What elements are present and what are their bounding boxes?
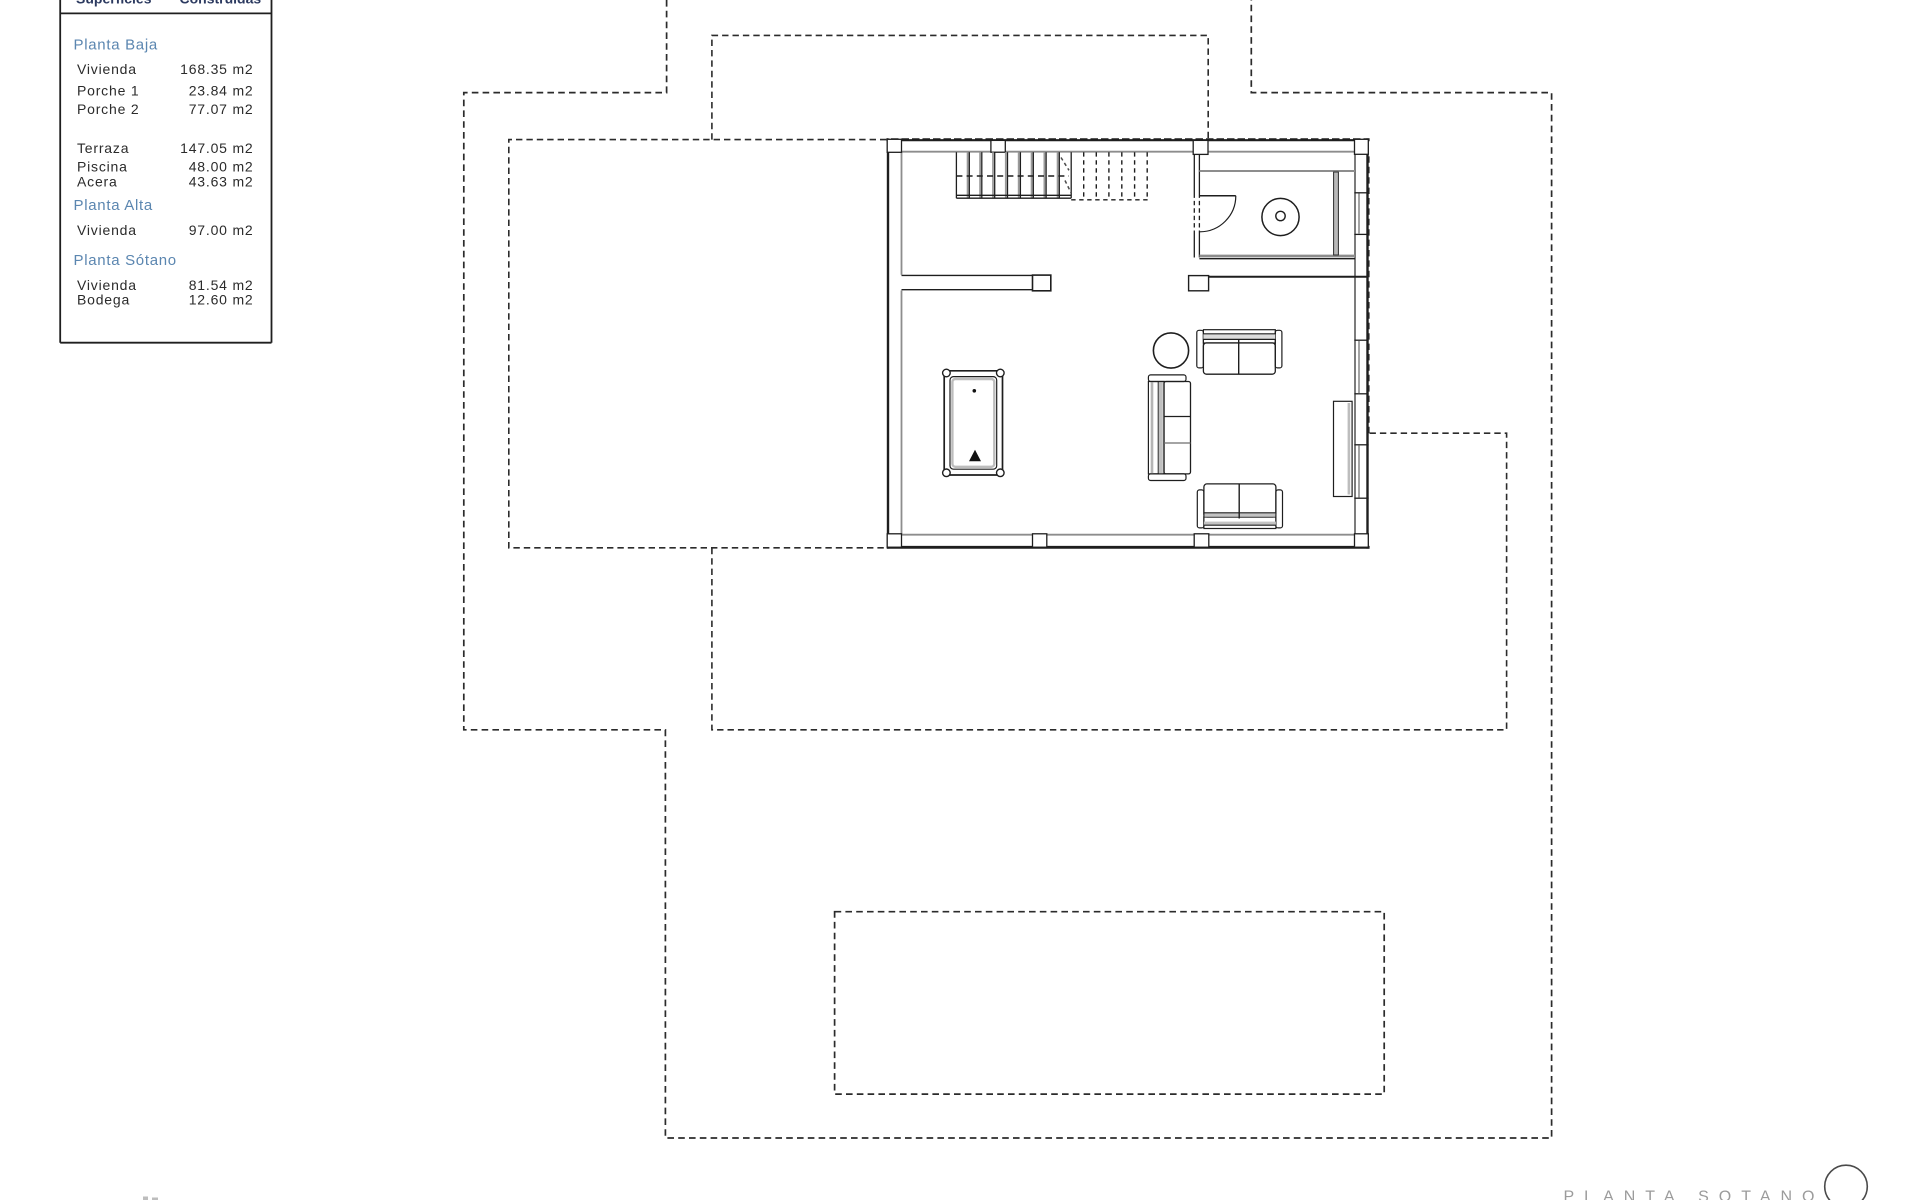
svg-text:147.05 m2: 147.05 m2: [180, 140, 253, 156]
svg-text:Porche 1: Porche 1: [77, 83, 139, 99]
svg-text:Acera: Acera: [77, 174, 118, 190]
svg-text:Porche 2: Porche 2: [77, 101, 139, 117]
svg-text:Superficies: Superficies: [76, 0, 152, 7]
svg-text:Vivienda: Vivienda: [77, 222, 137, 238]
svg-text:PLANTA SOTANO: PLANTA SOTANO: [1564, 1188, 1825, 1200]
svg-text:12.60 m2: 12.60 m2: [189, 292, 254, 308]
svg-text:97.00 m2: 97.00 m2: [189, 222, 254, 238]
svg-text:Vivienda: Vivienda: [77, 61, 137, 77]
svg-text:23.84 m2: 23.84 m2: [189, 83, 254, 99]
svg-text:Bodega: Bodega: [77, 292, 130, 308]
svg-text:168.35 m2: 168.35 m2: [180, 61, 253, 77]
svg-text:Piscina: Piscina: [77, 159, 128, 175]
svg-text:48.00 m2: 48.00 m2: [189, 159, 254, 175]
svg-text:Construidas: Construidas: [180, 0, 262, 7]
svg-text:77.07 m2: 77.07 m2: [189, 101, 254, 117]
svg-text:Planta Alta: Planta Alta: [74, 197, 153, 214]
svg-text:Planta Sótano: Planta Sótano: [74, 252, 177, 269]
svg-text:Terraza: Terraza: [77, 140, 129, 156]
svg-text:Planta Baja: Planta Baja: [74, 37, 158, 54]
svg-text:43.63 m2: 43.63 m2: [189, 174, 254, 190]
